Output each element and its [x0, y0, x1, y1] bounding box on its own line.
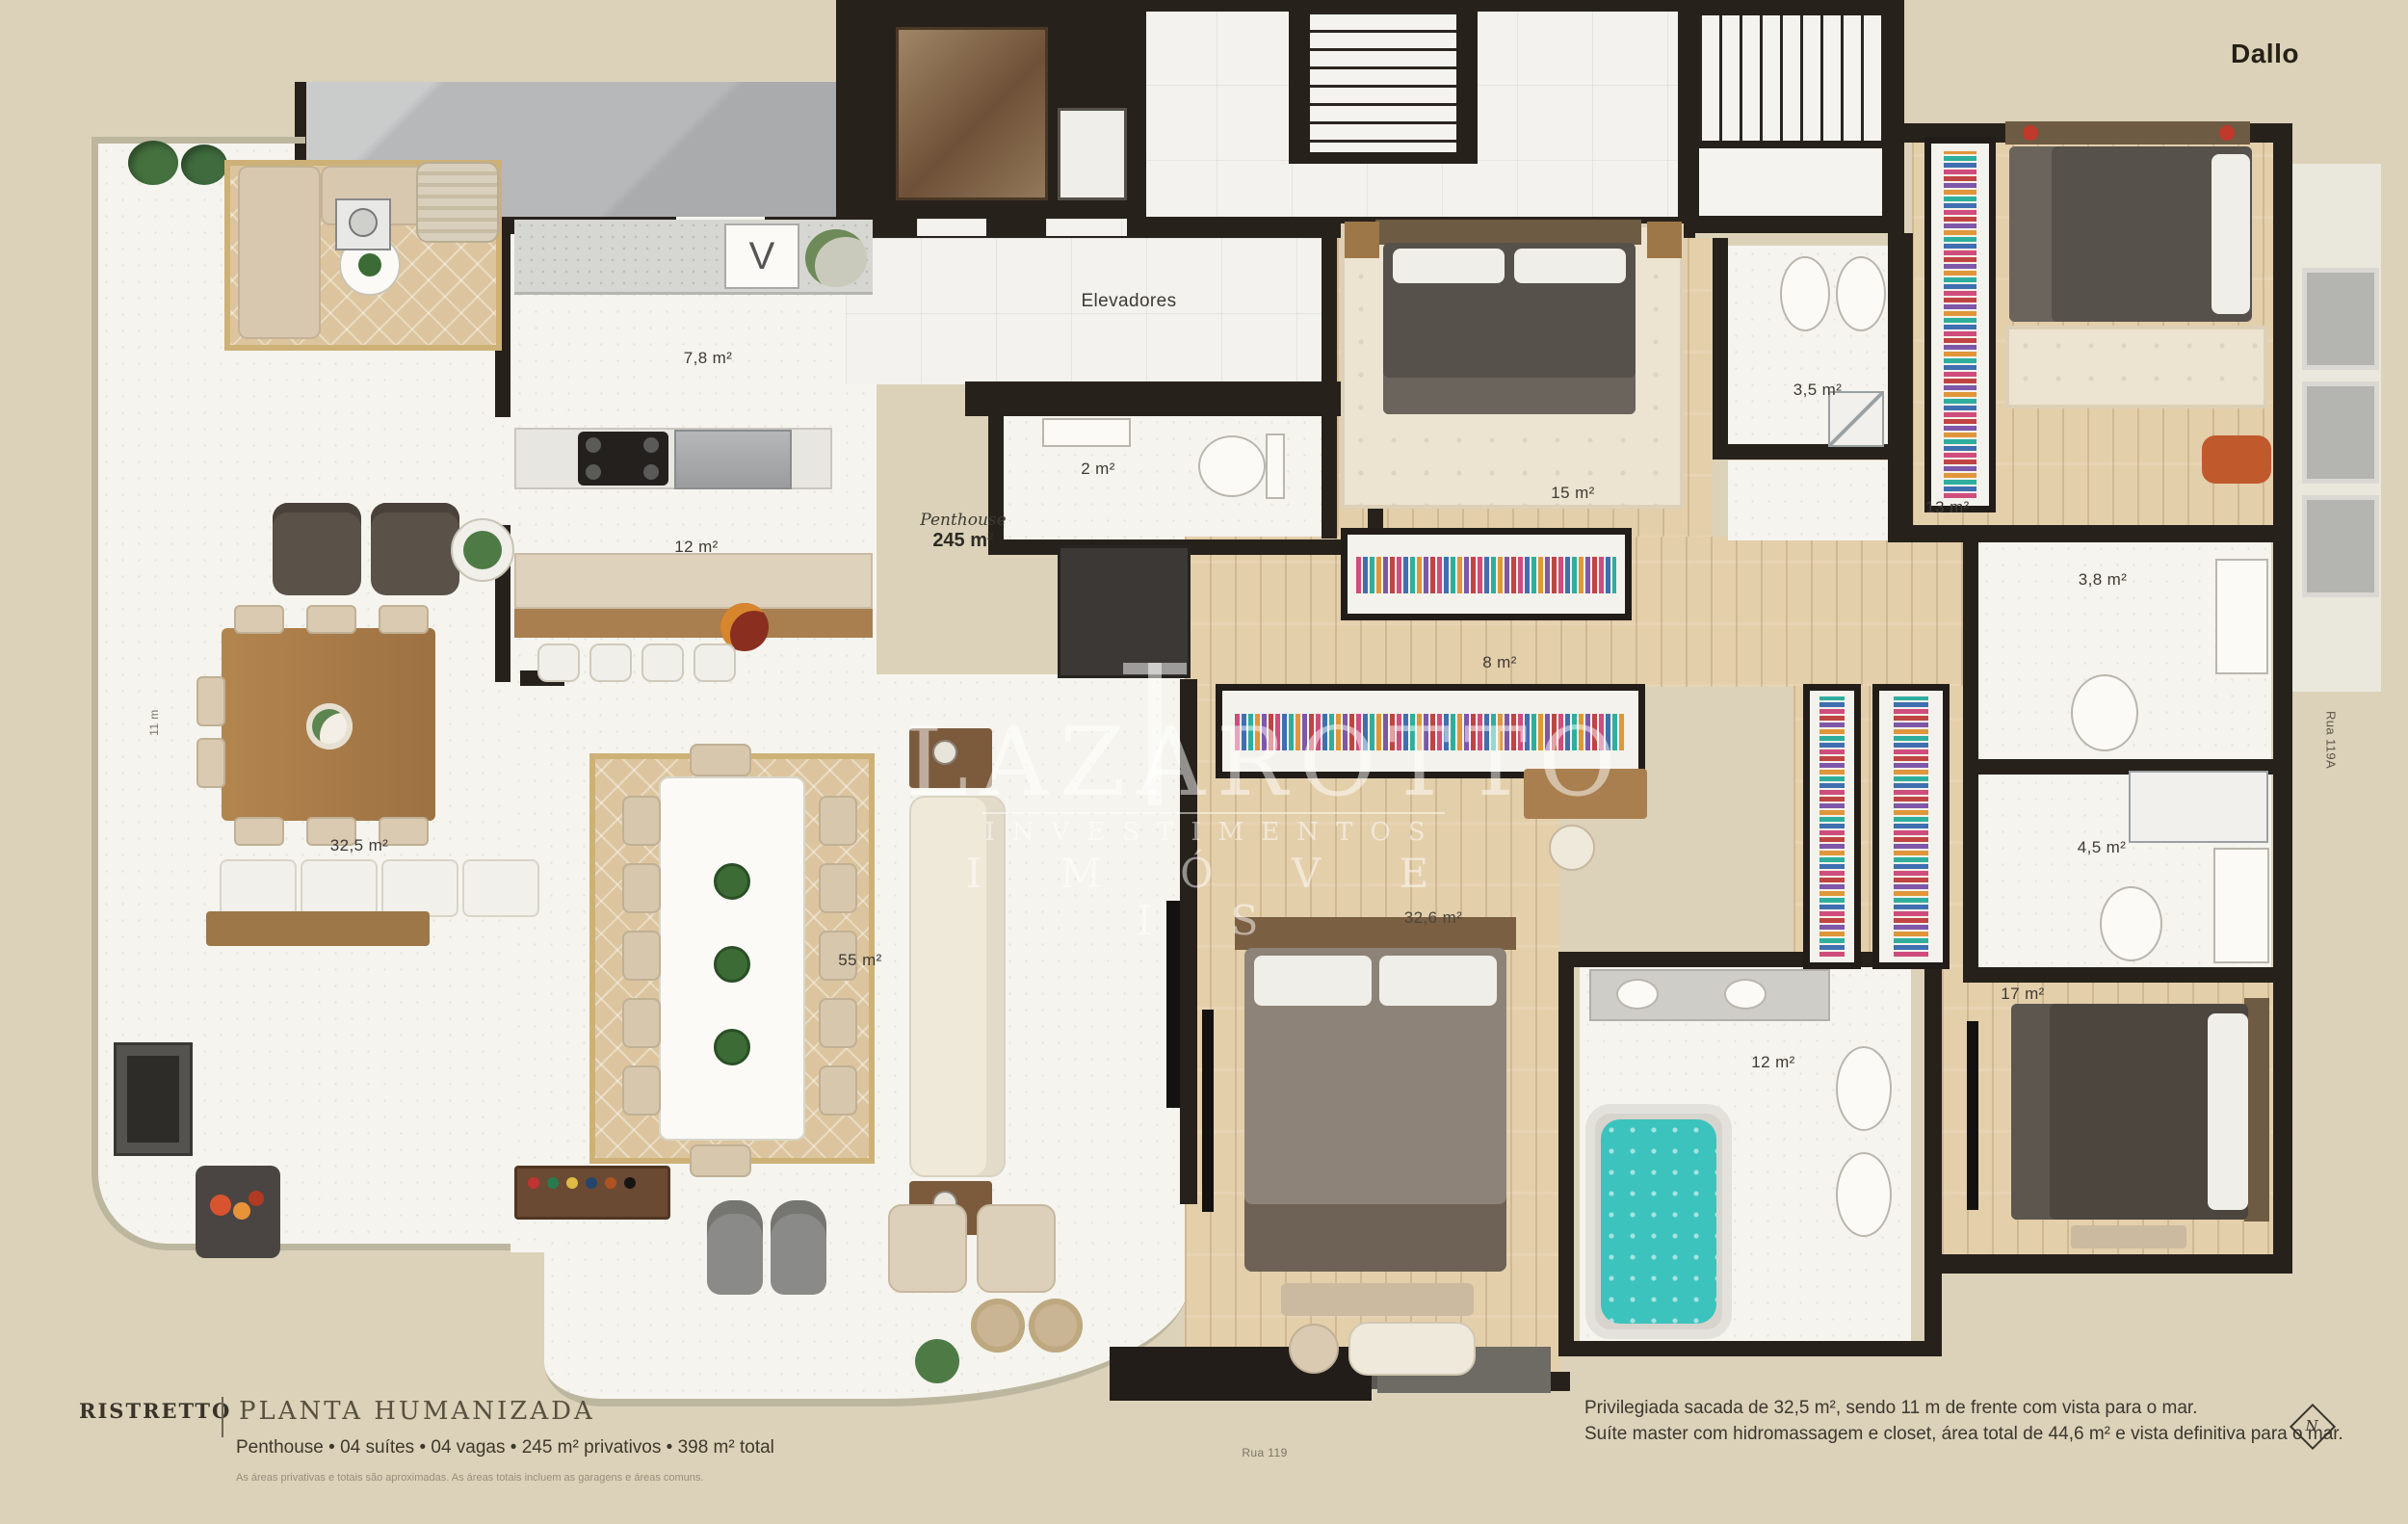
living-chair	[819, 796, 857, 846]
compass-north-label: N	[2290, 1405, 2333, 1447]
bath45-south-wall	[1963, 967, 2292, 983]
gray-lounger-2	[771, 1200, 826, 1295]
dining-chair	[234, 817, 284, 846]
planter-plant-2	[181, 145, 227, 185]
east-wall	[2273, 123, 2292, 1272]
burner	[586, 464, 601, 480]
lavabo-toilet-tank	[1266, 434, 1285, 499]
living-tv	[1166, 901, 1180, 1108]
centerpiece-green	[714, 863, 750, 900]
living-chair	[622, 998, 661, 1048]
dish-rack: V	[724, 223, 799, 289]
master-sink-1	[1616, 979, 1659, 1010]
master-bidet	[1836, 1152, 1892, 1237]
closet-clothes	[1235, 714, 1626, 751]
master-sink-2	[1724, 979, 1767, 1010]
dining-chair	[234, 605, 284, 634]
elevator-door-gap-2	[1046, 219, 1127, 236]
master-toilet	[1836, 1046, 1892, 1131]
room-label-bath2: 3,5 m²	[1793, 381, 1843, 400]
compass: N	[2290, 1405, 2333, 1447]
island-top	[514, 553, 873, 609]
footer-title: PLANTA HUMANIZADA	[239, 1397, 595, 1426]
description-line-1: Privilegiada sacada de 32,5 m², sendo 11…	[1584, 1395, 2343, 1421]
living-armchair-1	[888, 1204, 967, 1293]
living-chair	[622, 931, 661, 981]
storage-box-3	[2302, 495, 2379, 597]
master-pillow	[1379, 956, 1497, 1006]
bath45-vanity	[2213, 848, 2269, 963]
penthouse-name: Penthouse	[920, 511, 1006, 530]
terrace-sofa-vertical	[238, 166, 321, 339]
wicker-pouf-1	[971, 1299, 1025, 1353]
master-desk	[1524, 769, 1647, 819]
suite2-closet-rack	[1341, 528, 1632, 620]
penthouse-area: 245 m²	[920, 530, 1006, 552]
bath3-vanity	[2215, 559, 2268, 674]
shoe-rack-items	[1819, 696, 1845, 958]
burner	[586, 437, 601, 453]
wardrobe-clothes	[1944, 151, 1976, 499]
bath45-toilet	[2100, 886, 2162, 961]
centerpiece-green	[714, 946, 750, 983]
closet-clothes	[1356, 557, 1617, 593]
street-label-bottom: Rua 119	[1242, 1446, 1287, 1459]
terrace-armchair-1	[273, 503, 361, 595]
living-chair	[622, 1065, 661, 1116]
room-label-bath45: 4,5 m²	[2078, 838, 2127, 857]
living-chair	[622, 863, 661, 913]
elevator-door-gap-1	[917, 219, 986, 236]
living-chair	[819, 1065, 857, 1116]
stool	[537, 644, 580, 682]
room-label-living: 55 m²	[838, 951, 881, 970]
room-label-suite4: 17 m²	[2001, 985, 2044, 1004]
bar-cart	[514, 1166, 670, 1220]
terrace-armchair-striped	[416, 162, 499, 243]
suite3-red-lamp	[2219, 125, 2235, 141]
coffee-table-decor	[358, 253, 381, 276]
suite3-rug	[2005, 326, 2267, 408]
master-chaise	[1348, 1322, 1476, 1376]
living-armchair-2	[977, 1204, 1056, 1293]
bottle	[566, 1177, 578, 1189]
island-wood-front	[514, 609, 873, 638]
suite2-pillow	[1514, 249, 1626, 283]
stool	[641, 644, 684, 682]
elevator-cab-marble	[896, 27, 1048, 200]
terrace-plant-south	[915, 1339, 959, 1383]
bench-module	[301, 859, 378, 917]
suite3-wardrobe	[1924, 137, 1996, 512]
storage-box-2	[2302, 381, 2379, 484]
suite2-nightstand	[1345, 222, 1379, 258]
stainless-counter	[674, 430, 792, 489]
living-master-wall	[1180, 679, 1197, 1204]
suite3-west-wall	[1888, 233, 1913, 541]
room-label-masterbath: 12 m²	[1751, 1053, 1794, 1072]
dining-chair	[196, 676, 225, 726]
living-chair	[622, 796, 661, 846]
room-label-suite3: 13 m²	[1925, 498, 1969, 517]
burner	[643, 464, 659, 480]
room-label-master: 32,6 m²	[1404, 908, 1462, 928]
suite2-headboard	[1375, 220, 1641, 245]
bottle	[528, 1177, 539, 1189]
floor-plan-canvas: V	[0, 0, 2408, 1524]
elevators-label: Elevadores	[1081, 291, 1176, 312]
room-label-suite2: 15 m²	[1551, 484, 1594, 503]
living-sofa	[909, 796, 1006, 1177]
bottle	[605, 1177, 616, 1189]
lavabo-sink	[1042, 418, 1131, 447]
washer-door	[349, 208, 378, 237]
stairs-b	[1699, 15, 1882, 141]
street-label-right: Rua 119A	[2324, 711, 2339, 769]
grill-fire-2	[233, 1202, 250, 1220]
suite4-bench	[2071, 1225, 2186, 1248]
master-closet-rack	[1216, 684, 1645, 778]
bottle	[624, 1177, 636, 1189]
clothes-rack-items	[1894, 696, 1929, 958]
suite3-pillow-column	[2212, 154, 2250, 314]
master-desk-chair	[1549, 825, 1595, 871]
terrace-side-plant	[463, 531, 502, 569]
bath2-toilet	[1780, 256, 1830, 331]
master-tv	[1202, 1010, 1214, 1212]
storage-box-1	[2302, 268, 2379, 370]
terrace-top-parapet	[92, 137, 305, 144]
foyer-cabinet	[1058, 545, 1191, 678]
room-label-service: 7,8 m²	[684, 349, 733, 368]
veggie-basket	[805, 229, 867, 287]
description-block: Privilegiada sacada de 32,5 m², sendo 11…	[1584, 1395, 2343, 1447]
master-bath-east-wall	[1924, 967, 1942, 1343]
bottle	[586, 1177, 597, 1189]
living-chair	[819, 998, 857, 1048]
shoe-rack	[1803, 684, 1861, 969]
stairs-b-landing	[1699, 148, 1882, 216]
sideboard-wood	[206, 911, 430, 946]
room-label-kitchen: 12 m²	[674, 538, 718, 557]
fireplace-inner	[127, 1056, 179, 1143]
room-label-terrace: 32,5 m²	[330, 836, 388, 855]
wicker-pouf-2	[1029, 1299, 1083, 1353]
master-pillow	[1254, 956, 1372, 1006]
bench-module	[220, 859, 297, 917]
clothes-rack	[1872, 684, 1950, 969]
grill-fire-1	[210, 1195, 231, 1216]
bath3-toilet	[2071, 674, 2138, 751]
living-chair-end	[690, 1144, 751, 1177]
master-bath-south-wall	[1558, 1341, 1942, 1356]
burner	[643, 437, 659, 453]
grill-fire-3	[249, 1191, 264, 1206]
dimension-label-left: 11 m	[147, 709, 161, 735]
bench-module	[381, 859, 458, 917]
suite2-nightstand	[1647, 222, 1682, 258]
suite2-west-wall	[1322, 238, 1337, 539]
dining-chair	[379, 605, 429, 634]
centerpiece-green	[714, 1029, 750, 1065]
bottle	[547, 1177, 559, 1189]
shaft-west-wall	[836, 0, 857, 238]
master-headboard	[1235, 917, 1516, 950]
living-chair-end	[690, 744, 751, 776]
gray-lounger-1	[707, 1200, 763, 1295]
living-chair	[819, 863, 857, 913]
stool	[694, 644, 736, 682]
dining-flowers	[306, 703, 353, 749]
hydro-water	[1601, 1119, 1716, 1324]
stool	[589, 644, 632, 682]
description-line-2: Suíte master com hidromassagem e closet,…	[1584, 1421, 2343, 1447]
terrace-armchair-2	[371, 503, 459, 595]
lavabo-toilet-bowl	[1198, 435, 1266, 497]
suite2-east-wall	[1713, 238, 1728, 446]
suite2-pillow	[1393, 249, 1505, 283]
room-label-hall: 8 m²	[1482, 653, 1517, 672]
dining-chair	[306, 605, 356, 634]
planter-plant-1	[128, 141, 178, 185]
suite4-tv	[1967, 1021, 1978, 1210]
master-stool	[1289, 1324, 1339, 1374]
bench-module	[462, 859, 539, 917]
master-bath-west-wall	[1558, 967, 1574, 1343]
room-label-bath3: 3,8 m²	[2079, 570, 2128, 590]
elevator-cab-service	[1058, 108, 1127, 200]
penthouse-label: Penthouse 245 m²	[920, 511, 1006, 552]
suite4-pillow-column	[2208, 1013, 2248, 1210]
footer-disclaimer: As áreas privativas e totais são aproxim…	[236, 1472, 703, 1484]
dallo-logo: Dallo	[2231, 39, 2299, 69]
footer-divider	[222, 1397, 223, 1437]
footer-brand: Ristretto	[79, 1399, 231, 1423]
bath45-shower	[2129, 771, 2268, 843]
footer-subtitle: Penthouse • 04 suítes • 04 vagas • 245 m…	[236, 1437, 774, 1458]
suite4-south-wall	[1942, 1254, 2292, 1274]
south-terrace-floor	[544, 1235, 1190, 1406]
suite3-shelf	[2005, 121, 2250, 145]
lamp-1	[932, 740, 957, 765]
suite3-red-lamp	[2023, 125, 2038, 141]
suite3-south-wall	[1888, 525, 2292, 542]
master-bath-north-wall	[1558, 952, 1926, 967]
room-label-lavabo: 2 m²	[1081, 460, 1115, 479]
stairs-a	[1310, 12, 1456, 152]
bath2-bidet	[1836, 256, 1886, 331]
suite3-orange-pouf	[2202, 435, 2271, 484]
dining-chair	[196, 738, 225, 788]
bath2-corridor	[1728, 460, 1896, 540]
master-bench	[1281, 1283, 1474, 1316]
